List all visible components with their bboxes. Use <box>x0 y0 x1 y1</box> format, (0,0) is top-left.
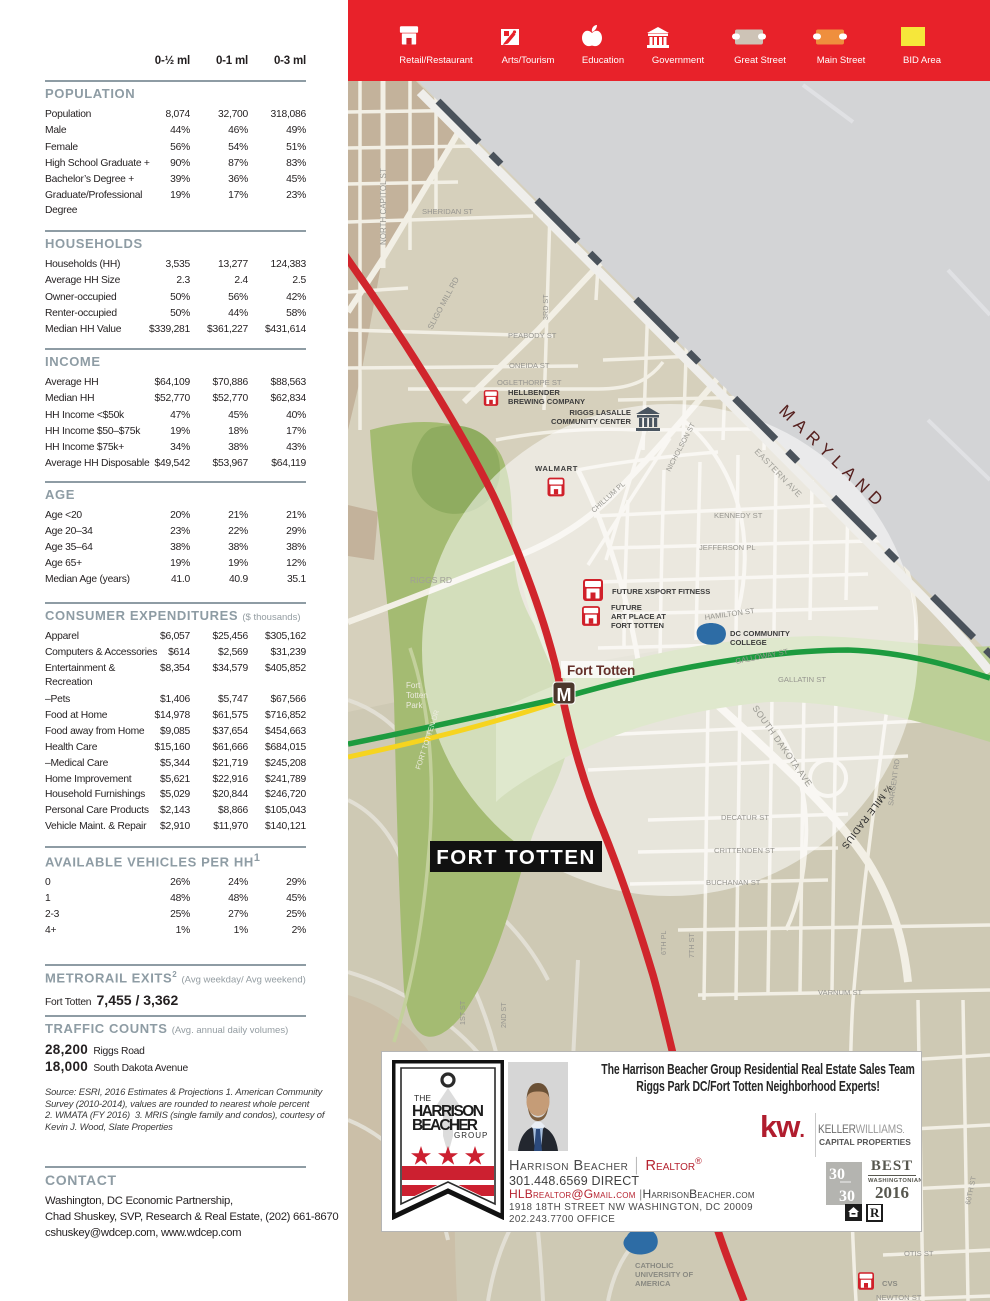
svg-text:GROUP: GROUP <box>454 1131 488 1140</box>
svg-text:BID Area: BID Area <box>903 55 942 66</box>
svg-text:OTIS ST: OTIS ST <box>904 1249 934 1258</box>
svg-text:KENNEDY ST: KENNEDY ST <box>714 511 763 520</box>
svg-text:Government: Government <box>652 55 705 66</box>
svg-text:JEFFERSON PL: JEFFERSON PL <box>699 543 756 552</box>
svg-text:CVS: CVS <box>882 1279 898 1288</box>
svg-text:BUCHANAN ST: BUCHANAN ST <box>706 878 761 887</box>
svg-text:PEABODY ST: PEABODY ST <box>508 331 557 340</box>
svg-text:3RD ST: 3RD ST <box>541 294 550 320</box>
svg-text:Great Street: Great Street <box>734 55 786 66</box>
svg-text:Arts/Tourism: Arts/Tourism <box>502 55 555 66</box>
svg-text:M: M <box>557 685 572 705</box>
svg-text:OGLETHORPE ST: OGLETHORPE ST <box>497 378 562 387</box>
svg-text:6TH PL: 6TH PL <box>659 931 668 955</box>
svg-text:R: R <box>870 1205 880 1220</box>
svg-text:2ND ST: 2ND ST <box>499 1002 508 1028</box>
svg-text:WALMART: WALMART <box>535 464 578 473</box>
svg-text:Fort Totten: Fort Totten <box>567 663 635 678</box>
svg-text:GALLATIN ST: GALLATIN ST <box>778 675 826 684</box>
svg-text:RIGGS RD: RIGGS RD <box>410 575 452 585</box>
svg-text:7TH ST: 7TH ST <box>687 933 696 958</box>
svg-text:1ST ST: 1ST ST <box>458 1000 467 1025</box>
svg-text:THE: THE <box>414 1093 431 1103</box>
svg-text:FUTURE XSPORT FITNESS: FUTURE XSPORT FITNESS <box>612 587 710 596</box>
svg-text:NORTH CAPITOL ST: NORTH CAPITOL ST <box>379 168 388 245</box>
svg-text:SHERIDAN ST: SHERIDAN ST <box>422 207 473 216</box>
svg-text:NEWTON ST: NEWTON ST <box>876 1293 922 1301</box>
svg-text:VARNUM ST: VARNUM ST <box>818 988 863 997</box>
svg-text:Main Street: Main Street <box>817 55 866 66</box>
svg-text:CRITTENDEN ST: CRITTENDEN ST <box>714 846 775 855</box>
svg-text:30: 30 <box>839 1188 855 1205</box>
svg-text:DECATUR ST: DECATUR ST <box>721 813 769 822</box>
svg-text:Retail/Restaurant: Retail/Restaurant <box>399 55 473 66</box>
svg-text:FORT TOTTEN: FORT TOTTEN <box>436 846 596 869</box>
svg-text:ONEIDA ST: ONEIDA ST <box>509 361 550 370</box>
svg-text:Education: Education <box>582 55 624 66</box>
svg-text:30: 30 <box>829 1166 845 1183</box>
